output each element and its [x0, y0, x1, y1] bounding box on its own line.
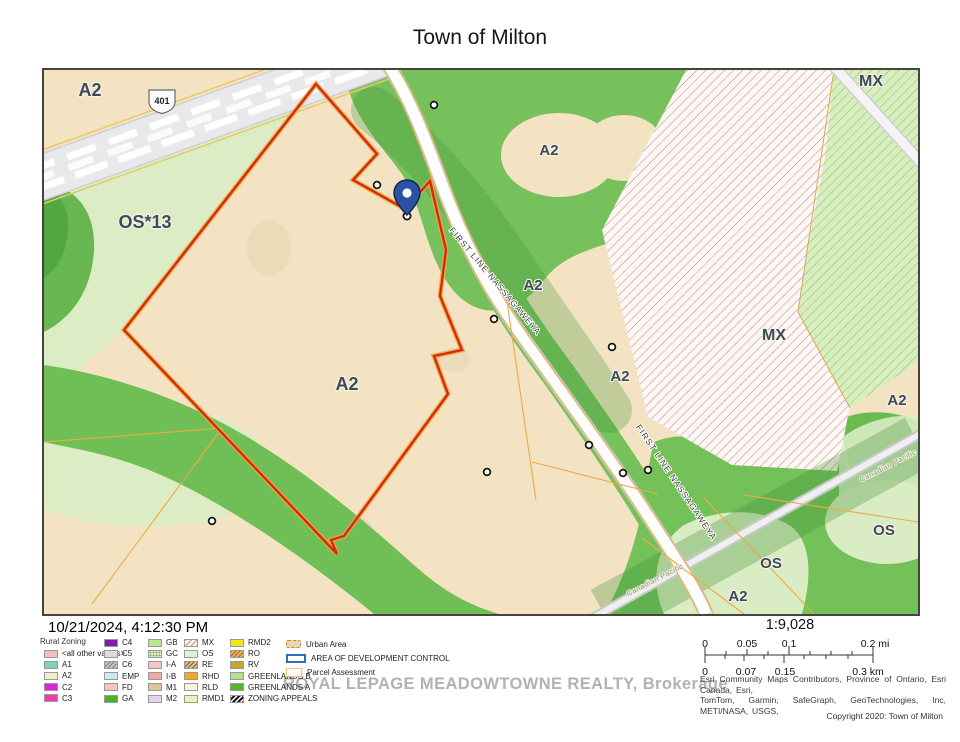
legend-item: RMD1: [184, 693, 225, 704]
legend-item: GC: [148, 648, 178, 659]
zone-label: A2: [335, 374, 358, 394]
legend-item-label: RV: [248, 660, 259, 669]
zone-label: OS*13: [118, 212, 171, 232]
legend-item: RE: [184, 659, 225, 670]
legend-swatch: [184, 695, 198, 703]
zone-label: A2: [728, 588, 747, 605]
legend-swatch: [44, 661, 58, 669]
legend-item-label: EMP: [122, 672, 139, 681]
legend-item-label: RO: [248, 649, 260, 658]
terrain-shade: [247, 220, 291, 276]
legend-swatch: [44, 683, 58, 691]
legend-item-label: OS: [202, 649, 214, 658]
legend-item-label: RHD: [202, 672, 219, 681]
legend-item-label: RE: [202, 660, 213, 669]
legend-item-label: I-A: [166, 660, 176, 669]
legend-swatch: [104, 695, 118, 703]
legend-item: I-B: [148, 671, 178, 682]
zone-label: A2: [523, 277, 542, 294]
legend-item: EMP: [104, 671, 139, 682]
legend-title: Rural Zoning: [40, 637, 86, 646]
svg-text:401: 401: [154, 96, 169, 106]
legend-swatch: [230, 661, 244, 669]
legend-swatch: [230, 695, 244, 703]
legend-item: GA: [104, 693, 139, 704]
legend-swatch: [148, 661, 162, 669]
legend-swatch: [230, 683, 244, 691]
legend-item-label: A2: [62, 671, 72, 680]
zone-label: A2: [610, 368, 629, 385]
legend-item-label: M1: [166, 683, 177, 692]
legend-swatch: [230, 639, 244, 647]
zone-label: A2: [887, 392, 906, 409]
legend-item: GB: [148, 637, 178, 648]
legend-item-label: RMD2: [248, 638, 271, 647]
scale-mi-label: 0.05: [737, 638, 758, 650]
legend-item-label: C6: [122, 660, 132, 669]
zoning-map: A2 OS*13 A2 A2 A2 A2 MX MX A2 OS OS A2 F…: [44, 70, 918, 614]
map-timestamp: 10/21/2024, 4:12:30 PM: [48, 619, 208, 636]
legend-item: RLD: [184, 682, 225, 693]
legend-item-label: Parcel Assessment: [307, 668, 375, 677]
legend-item-label: Urban Area: [306, 640, 346, 649]
legend-swatch: [104, 683, 118, 691]
legend-swatch: [286, 654, 306, 663]
page-title: Town of Milton: [0, 26, 960, 50]
zone-label: MX: [859, 73, 883, 90]
legend-item: RHD: [184, 671, 225, 682]
legend-column: C4 C5 C6 EMP FD GA: [104, 637, 139, 704]
legend-item-label: GREENLANDS A: [248, 683, 310, 692]
legend-item-label: RLD: [202, 683, 218, 692]
legend-swatch: [286, 640, 301, 648]
zone-label: MX: [762, 327, 786, 344]
legend-swatch: [184, 650, 198, 658]
legend-item-label: C4: [122, 638, 132, 647]
legend-swatch: [104, 672, 118, 680]
legend-item: MX: [184, 637, 225, 648]
legend-swatch: [184, 661, 198, 669]
legend-swatch: [44, 694, 58, 702]
legend-swatch: [230, 672, 244, 680]
zone-label: A2: [78, 80, 101, 100]
legend-swatch: [148, 650, 162, 658]
legend-swatch: [148, 672, 162, 680]
legend-item-label: FD: [122, 683, 133, 692]
legend-item: I-A: [148, 659, 178, 670]
legend-swatch: [148, 683, 162, 691]
legend-item-label: GC: [166, 649, 178, 658]
legend-column: GB GC I-A I-B M1 M2: [148, 637, 178, 704]
legend-item-label: C3: [62, 694, 72, 703]
legend-item: C5: [104, 648, 139, 659]
legend-item-label: GA: [122, 694, 134, 703]
copyright-notice: Copyright 2020: Town of Milton: [700, 711, 943, 721]
legend-item: C6: [104, 659, 139, 670]
legend-swatch: [104, 639, 118, 647]
legend-item-label: I-B: [166, 672, 176, 681]
legend-swatch: [184, 672, 198, 680]
legend-swatch: [184, 683, 198, 691]
legend-swatch: [44, 672, 58, 680]
legend-swatch: [104, 661, 118, 669]
zone-label: OS: [760, 555, 782, 572]
legend-column: MX OS RE RHD RLD RMD1: [184, 637, 225, 704]
highway-401-shield-icon: 401: [149, 90, 175, 114]
scale-ratio: 1:9,028: [700, 617, 880, 633]
legend-swatch: [286, 668, 302, 677]
legend-item-label: ZONING APPEALS: [248, 694, 317, 703]
legend-swatch: [184, 639, 198, 647]
scale-mi-label: 0.2 mi: [861, 638, 890, 650]
legend-item: FD: [104, 682, 139, 693]
legend-item: GREENLANDS A: [230, 682, 317, 693]
legend-swatch: [44, 650, 58, 658]
legend-item-label: A1: [62, 660, 72, 669]
legend-item-label: RMD1: [202, 694, 225, 703]
legend-column: Urban Area AREA OF DEVELOPMENT CONTROL P…: [286, 637, 450, 679]
legend-item-label: AREA OF DEVELOPMENT CONTROL: [311, 654, 450, 663]
legend-swatch: [148, 639, 162, 647]
legend-item: M2: [148, 693, 178, 704]
legend-item-label: C5: [122, 649, 132, 658]
legend-item: Parcel Assessment: [286, 665, 450, 679]
attribution-line: Esri Community Maps Contributors, Provin…: [700, 674, 946, 695]
legend-item-label: GB: [166, 638, 178, 647]
zone-label: A2: [539, 142, 558, 159]
legend-item: Urban Area: [286, 637, 450, 651]
legend-item: C4: [104, 637, 139, 648]
legend-swatch: [104, 650, 118, 658]
legend-swatch: [148, 695, 162, 703]
zone-label: OS: [873, 522, 895, 539]
legend-item-label: M2: [166, 694, 177, 703]
legend-item: ZONING APPEALS: [230, 693, 317, 704]
legend-swatch: [230, 650, 244, 658]
legend-item-label: C2: [62, 683, 72, 692]
legend-item: OS: [184, 648, 225, 659]
legend-item-label: MX: [202, 638, 214, 647]
map-attribution: Esri Community Maps Contributors, Provin…: [700, 674, 946, 716]
legend-item: AREA OF DEVELOPMENT CONTROL: [286, 651, 450, 665]
map-canvas: A2 OS*13 A2 A2 A2 A2 MX MX A2 OS OS A2 F…: [42, 68, 920, 616]
legend-item: M1: [148, 682, 178, 693]
